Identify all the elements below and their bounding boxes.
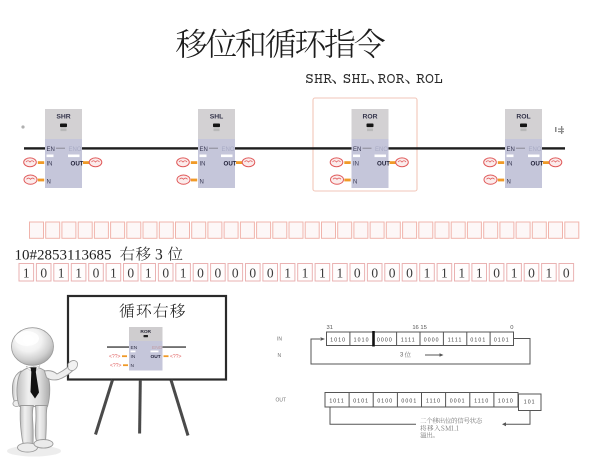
svg-text:0: 0 xyxy=(493,266,500,281)
svg-text:0001: 0001 xyxy=(450,398,466,404)
svg-text:1: 1 xyxy=(284,266,291,281)
svg-text:IN: IN xyxy=(200,162,206,168)
svg-text:1: 1 xyxy=(180,266,187,281)
svg-text:<??>: <??> xyxy=(109,354,120,360)
svg-text:ENO: ENO xyxy=(69,147,82,153)
svg-text:1110: 1110 xyxy=(474,398,489,404)
svg-text:0001: 0001 xyxy=(401,398,417,404)
svg-text:1011: 1011 xyxy=(329,398,345,404)
svg-text:1010: 1010 xyxy=(330,338,346,344)
svg-text:OUT: OUT xyxy=(531,161,544,168)
svg-text:1110: 1110 xyxy=(426,398,441,404)
svg-text:1: 1 xyxy=(337,266,344,281)
svg-text:EN: EN xyxy=(200,147,208,153)
svg-text:N: N xyxy=(507,180,511,186)
svg-text:101: 101 xyxy=(524,399,536,405)
svg-text:0: 0 xyxy=(354,266,361,281)
svg-text:0: 0 xyxy=(215,266,222,281)
svg-text:N: N xyxy=(353,180,357,186)
svg-text:IN: IN xyxy=(47,162,53,168)
svg-text:0: 0 xyxy=(510,325,513,331)
svg-text:31: 31 xyxy=(327,325,333,331)
svg-text:EN: EN xyxy=(131,345,138,351)
svg-text:SHL: SHL xyxy=(210,114,224,121)
svg-text:1: 1 xyxy=(424,266,431,281)
svg-text:10#2853113685: 10#2853113685 xyxy=(15,248,112,264)
svg-text:<??>: <??> xyxy=(110,363,121,369)
svg-text:N: N xyxy=(131,363,135,369)
svg-text:1010: 1010 xyxy=(498,398,514,404)
svg-text:0: 0 xyxy=(563,266,570,281)
svg-text:OUT: OUT xyxy=(224,161,237,168)
svg-text:1010: 1010 xyxy=(354,338,370,344)
svg-text:OUT: OUT xyxy=(151,354,161,360)
svg-text:EN: EN xyxy=(47,147,55,153)
svg-text:0000: 0000 xyxy=(377,338,393,344)
svg-text:1111: 1111 xyxy=(401,338,416,344)
svg-text:ENO: ENO xyxy=(529,147,542,153)
svg-text:IN: IN xyxy=(353,162,359,168)
svg-text:0101: 0101 xyxy=(470,338,486,344)
svg-text:1: 1 xyxy=(58,266,65,281)
svg-text:IN: IN xyxy=(131,354,136,360)
svg-text:OUT: OUT xyxy=(377,161,390,168)
svg-text:N: N xyxy=(200,180,204,186)
svg-text:0: 0 xyxy=(389,266,396,281)
svg-text:0000: 0000 xyxy=(424,338,440,344)
svg-text:1111: 1111 xyxy=(448,338,463,344)
svg-text:1: 1 xyxy=(23,266,30,281)
svg-text:0: 0 xyxy=(93,266,100,281)
svg-text:0: 0 xyxy=(371,266,378,281)
svg-text:0: 0 xyxy=(249,266,256,281)
svg-text:ENO: ENO xyxy=(375,147,388,153)
svg-text:1: 1 xyxy=(145,266,152,281)
svg-text:IN: IN xyxy=(507,162,513,168)
svg-text:OUT: OUT xyxy=(71,161,84,168)
svg-text:0: 0 xyxy=(127,266,134,281)
svg-text:ROL: ROL xyxy=(516,114,530,121)
svg-text:1: 1 xyxy=(546,266,553,281)
svg-text:0: 0 xyxy=(232,266,239,281)
svg-text:0: 0 xyxy=(197,266,204,281)
svg-text:N: N xyxy=(47,180,51,186)
svg-text:0101: 0101 xyxy=(353,398,369,404)
svg-text:1: 1 xyxy=(476,266,483,281)
svg-text:0: 0 xyxy=(406,266,413,281)
svg-text:ENO: ENO xyxy=(222,147,235,153)
svg-text:<??>: <??> xyxy=(170,354,181,360)
svg-text:SHR: SHR xyxy=(56,114,70,121)
svg-text:0: 0 xyxy=(528,266,535,281)
svg-text:ROR: ROR xyxy=(362,114,377,121)
svg-text:1: 1 xyxy=(511,266,518,281)
svg-text:1: 1 xyxy=(75,266,82,281)
svg-text:ROR: ROR xyxy=(140,329,151,335)
svg-text:0: 0 xyxy=(267,266,274,281)
svg-text:0101: 0101 xyxy=(494,338,510,344)
svg-text:1: 1 xyxy=(319,266,326,281)
svg-text:EN: EN xyxy=(353,147,361,153)
svg-text:16 15: 16 15 xyxy=(412,325,427,331)
svg-text:0: 0 xyxy=(162,266,169,281)
svg-text:IN: IN xyxy=(277,337,282,343)
svg-text:0100: 0100 xyxy=(377,398,393,404)
svg-text:N: N xyxy=(278,353,282,359)
svg-text:OUT: OUT xyxy=(276,398,287,404)
svg-text:EN: EN xyxy=(507,147,515,153)
svg-text:1: 1 xyxy=(302,266,309,281)
svg-text:0: 0 xyxy=(40,266,47,281)
svg-text:ENO: ENO xyxy=(152,345,163,351)
svg-text:1: 1 xyxy=(110,266,117,281)
svg-text:1: 1 xyxy=(441,266,448,281)
svg-text:3: 3 xyxy=(155,247,163,264)
svg-text:1: 1 xyxy=(458,266,465,281)
